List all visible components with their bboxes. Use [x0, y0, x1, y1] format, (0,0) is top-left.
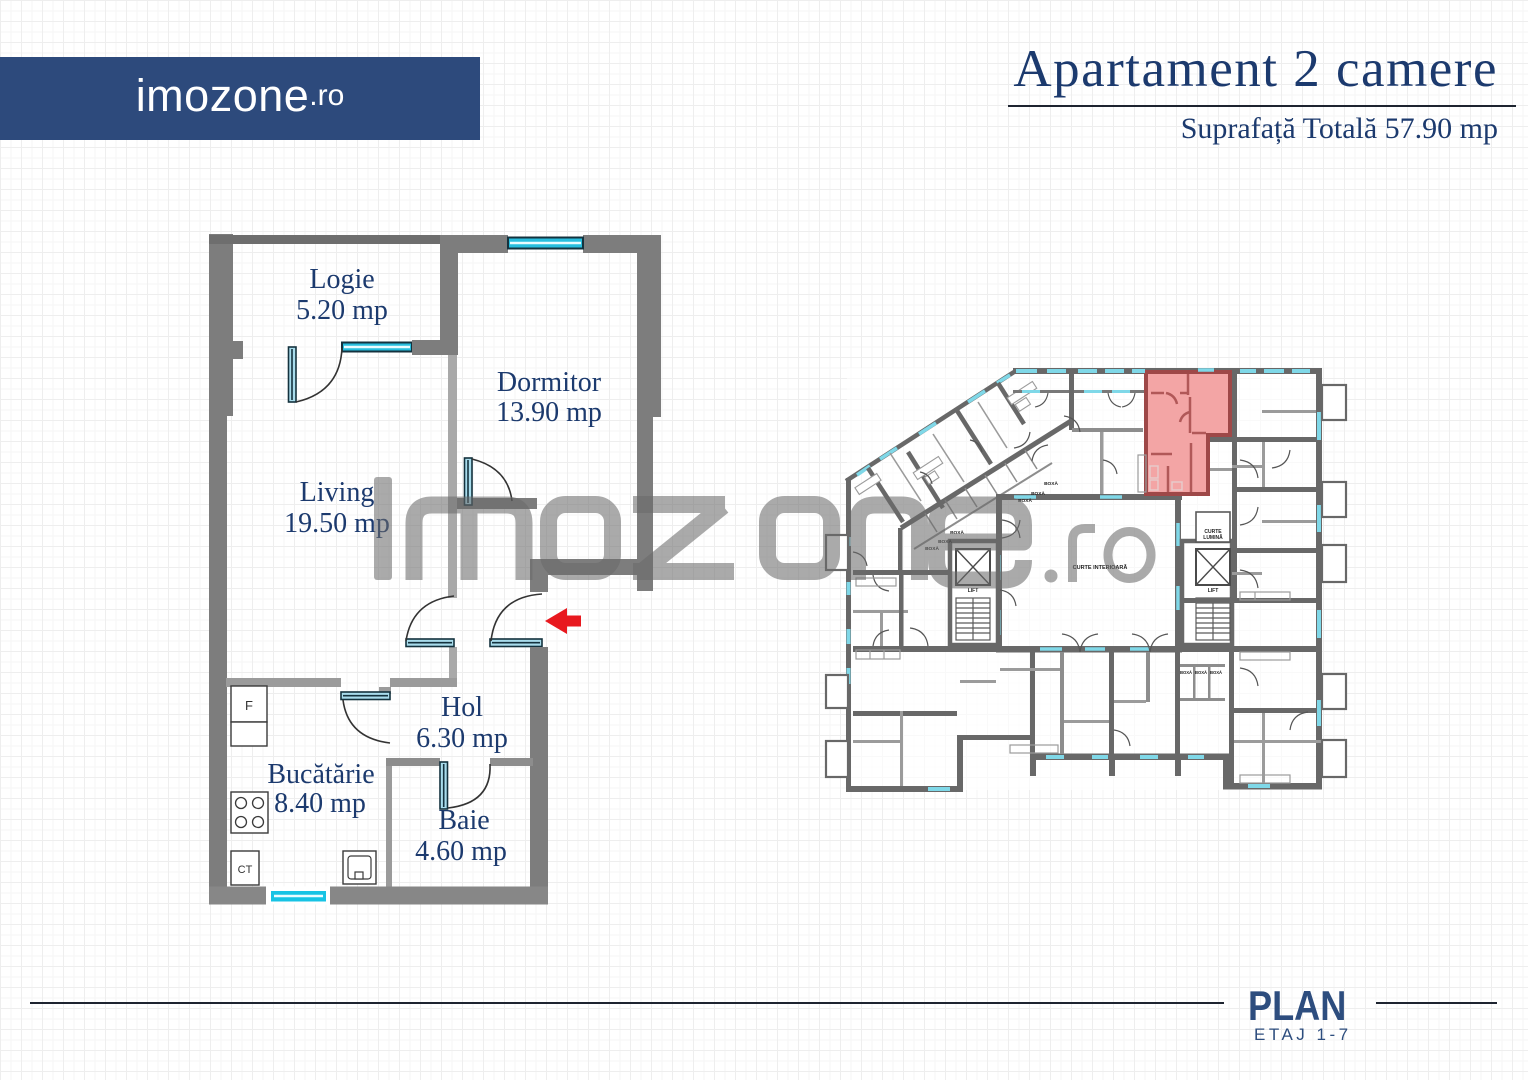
svg-text:5.20 mp: 5.20 mp: [296, 295, 388, 326]
svg-text:6.30 mp: 6.30 mp: [416, 723, 508, 754]
svg-text:BOXĂ: BOXĂ: [1044, 480, 1058, 487]
svg-text:8.40 mp: 8.40 mp: [274, 788, 366, 819]
svg-text:F: F: [245, 698, 253, 713]
svg-text:13.90 mp: 13.90 mp: [496, 397, 602, 428]
svg-text:Living: Living: [300, 477, 375, 508]
svg-text:4.60 mp: 4.60 mp: [415, 836, 507, 867]
svg-text:CURTE INTERIOARĂ: CURTE INTERIOARĂ: [1073, 564, 1128, 571]
svg-text:BOXĂ: BOXĂ: [1195, 670, 1207, 675]
svg-text:BOXĂ: BOXĂ: [1031, 490, 1045, 497]
svg-text:Bucătărie: Bucătărie: [267, 759, 374, 790]
svg-text:LIFT: LIFT: [968, 588, 979, 594]
svg-text:Baie: Baie: [438, 805, 489, 836]
svg-text:LUMINĂ: LUMINĂ: [1203, 534, 1223, 541]
svg-text:BOXĂ: BOXĂ: [1210, 670, 1222, 675]
svg-text:Hol: Hol: [441, 692, 483, 723]
svg-text:CT: CT: [238, 864, 253, 876]
svg-text:Logie: Logie: [309, 264, 374, 295]
svg-text:LIFT: LIFT: [1208, 588, 1219, 594]
svg-text:Dormitor: Dormitor: [497, 367, 602, 398]
svg-text:BOXĂ: BOXĂ: [1180, 670, 1192, 675]
